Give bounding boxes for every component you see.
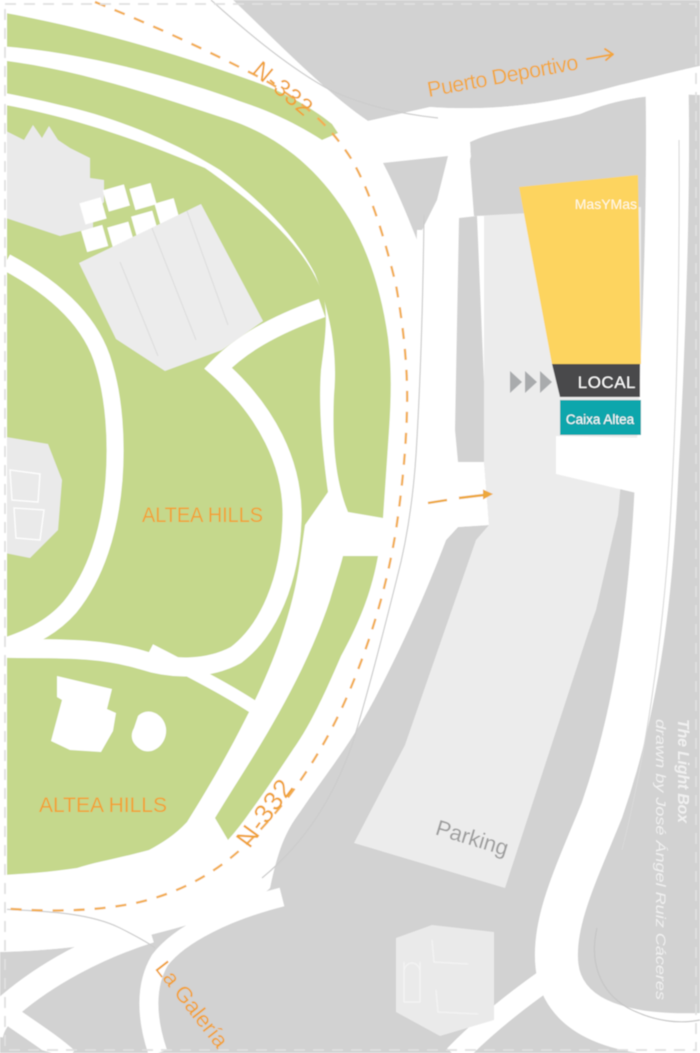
- svg-text:drawn by José Ángel Ruiz Cácer: drawn by José Ángel Ruiz Cáceres: [653, 719, 668, 1000]
- svg-text:MasYMas: MasYMas: [575, 196, 637, 212]
- svg-text:ALTEA HILLS: ALTEA HILLS: [142, 504, 263, 527]
- svg-text:Caixa Altea: Caixa Altea: [566, 412, 635, 427]
- svg-text:LOCAL: LOCAL: [578, 373, 636, 392]
- svg-text:The Light Box: The Light Box: [674, 719, 691, 824]
- svg-text:ALTEA HILLS: ALTEA HILLS: [39, 794, 167, 817]
